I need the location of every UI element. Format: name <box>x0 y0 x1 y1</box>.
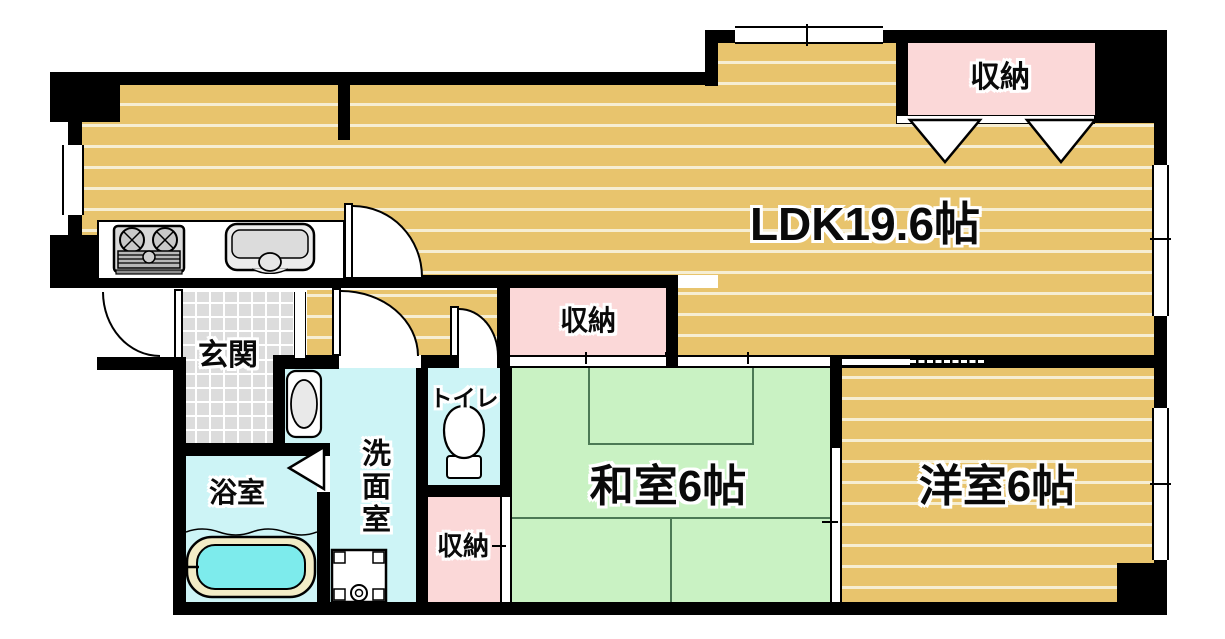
toilet-icon <box>440 400 488 482</box>
stove-icon <box>112 224 186 276</box>
wall-segment <box>497 275 510 355</box>
wall-segment <box>665 352 678 368</box>
room-label-storage-bottom: 収納 <box>413 530 513 562</box>
room-label-toilet: トイレ <box>414 384 514 412</box>
window <box>735 26 883 44</box>
door-leaf <box>344 203 353 279</box>
wall-segment <box>97 357 186 370</box>
window-tick <box>1150 238 1171 240</box>
bathtub-icon <box>183 532 318 602</box>
ldk-floor-lower <box>678 288 718 355</box>
wall-segment <box>500 355 512 497</box>
tatami-line <box>588 368 590 445</box>
room-label-ldk: LDK19.6帖 <box>700 196 1030 252</box>
wall-segment <box>68 122 82 146</box>
bath-door-icon <box>286 445 326 491</box>
window-tick <box>806 24 808 46</box>
room-label-storage-top: 収納 <box>940 60 1060 96</box>
room-label-storage-mid: 収納 <box>528 304 648 338</box>
washbasin-icon <box>285 369 323 439</box>
room-label-yoshitsu: 洋室6帖 <box>862 460 1132 514</box>
window <box>62 145 84 215</box>
wall-segment <box>317 492 330 615</box>
tatami-line <box>588 443 754 445</box>
wall-segment <box>68 213 82 237</box>
room-label-bath: 浴室 <box>187 477 287 509</box>
room-label-washitsu: 和室6帖 <box>538 460 798 514</box>
tatami-line <box>670 517 672 602</box>
wall-segment <box>666 275 678 355</box>
sliding-door-tick <box>747 352 749 364</box>
sliding-door-tick <box>585 352 587 364</box>
toilet-door-leaf <box>450 306 459 357</box>
folding-door-icon <box>896 118 1095 164</box>
wall-segment <box>1095 30 1167 123</box>
tatami-line <box>752 368 754 445</box>
wall-segment <box>50 72 718 85</box>
window-tick <box>1150 483 1171 485</box>
window <box>1152 165 1169 316</box>
wall-segment <box>1154 368 1167 412</box>
wall-segment <box>338 72 350 140</box>
wall-segment <box>173 602 1167 615</box>
room-label-genkan: 玄関 <box>178 338 278 374</box>
wall-segment <box>428 485 500 497</box>
wall-segment <box>1154 558 1167 605</box>
sliding-door-tick <box>822 521 838 523</box>
wall-segment <box>1154 123 1167 165</box>
genkan-step <box>294 292 306 358</box>
floorplan: LDK19.6帖 和室6帖 洋室6帖 玄関 浴室 洗面室 トイレ 収納 収納 収… <box>0 0 1225 639</box>
room-label-washroom: 洗面室 <box>352 412 394 562</box>
sliding-door <box>510 355 666 368</box>
bath-water-line <box>186 524 317 536</box>
wall-segment <box>896 30 908 118</box>
wall-segment <box>50 72 120 122</box>
open-passage-dashed <box>910 360 984 363</box>
sliding-door <box>842 357 910 367</box>
kitchen-sink-icon <box>224 222 316 274</box>
washroom-door-leaf <box>332 288 341 356</box>
sliding-door <box>678 355 830 368</box>
sliding-door <box>830 448 842 602</box>
wall-segment <box>830 368 842 448</box>
